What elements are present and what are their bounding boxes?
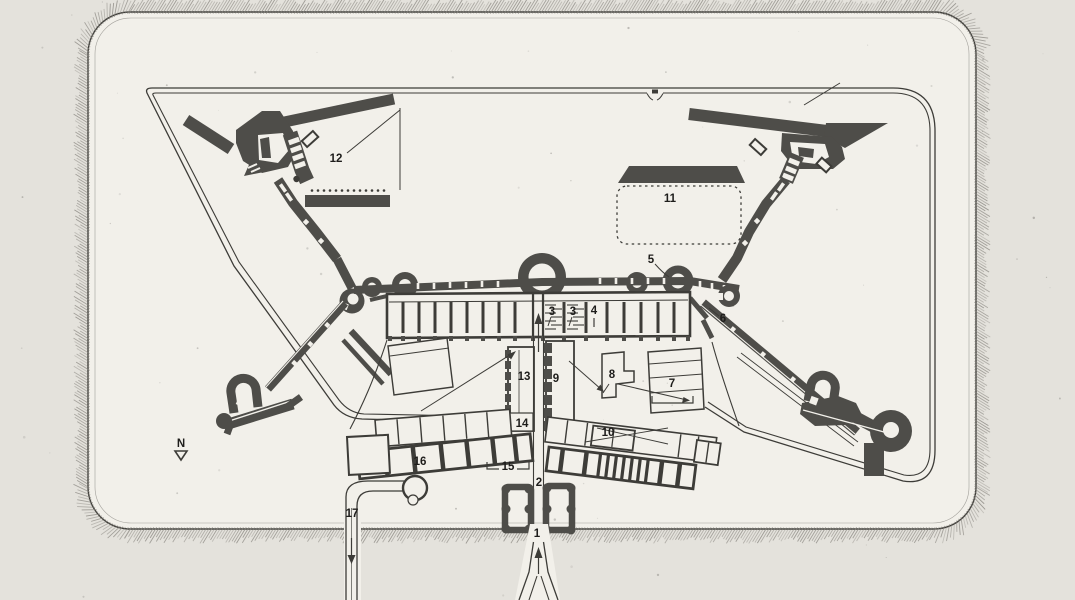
road-roundabout-lobe [408,495,418,505]
plan-label-north: N [177,438,185,450]
plan-label-17: 17 [346,508,359,520]
plan-label-11: 11 [664,193,677,205]
plan-label-15: 15 [502,461,515,473]
plan-label-3b: 3 [570,306,576,318]
scanned-fort-plan-page: 12334567891011121314151617N [0,0,1075,600]
plan-label-16: 16 [414,456,427,468]
plan-label-7: 7 [669,378,675,390]
e-outwork-tower-interior [883,422,899,438]
plan-label-4: 4 [591,305,598,317]
west-courtyard-building [388,338,453,395]
w-outwork-foot [227,423,231,434]
plan-label-2: 2 [536,477,542,489]
east-end-rooms [694,440,721,465]
plan-label-6: 6 [720,313,726,325]
w-end-turret-interior [348,294,359,305]
plan-label-14: 14 [516,418,529,430]
plan-label-5: 5 [648,254,655,266]
plan-label-13: 13 [518,371,531,383]
nw-well-dot [293,176,299,182]
fort-plan-figure: 12334567891011121314151617N [0,0,1075,600]
e-outwork-stub [864,443,884,476]
turret-6-interior [724,291,734,301]
plan-label-10: 10 [602,427,615,439]
plan-label-1: 1 [534,528,541,540]
plan-label-9: 9 [553,373,559,385]
plan-label-12: 12 [330,153,343,165]
nw-battery-bar [305,195,390,207]
area-11-battery-bar [618,166,745,183]
perimeter-notch-marker [652,90,658,94]
west-end-room [347,435,390,475]
plan-label-8: 8 [609,369,616,381]
turret-6-opening [714,293,723,300]
plan-label-3a: 3 [549,306,555,318]
